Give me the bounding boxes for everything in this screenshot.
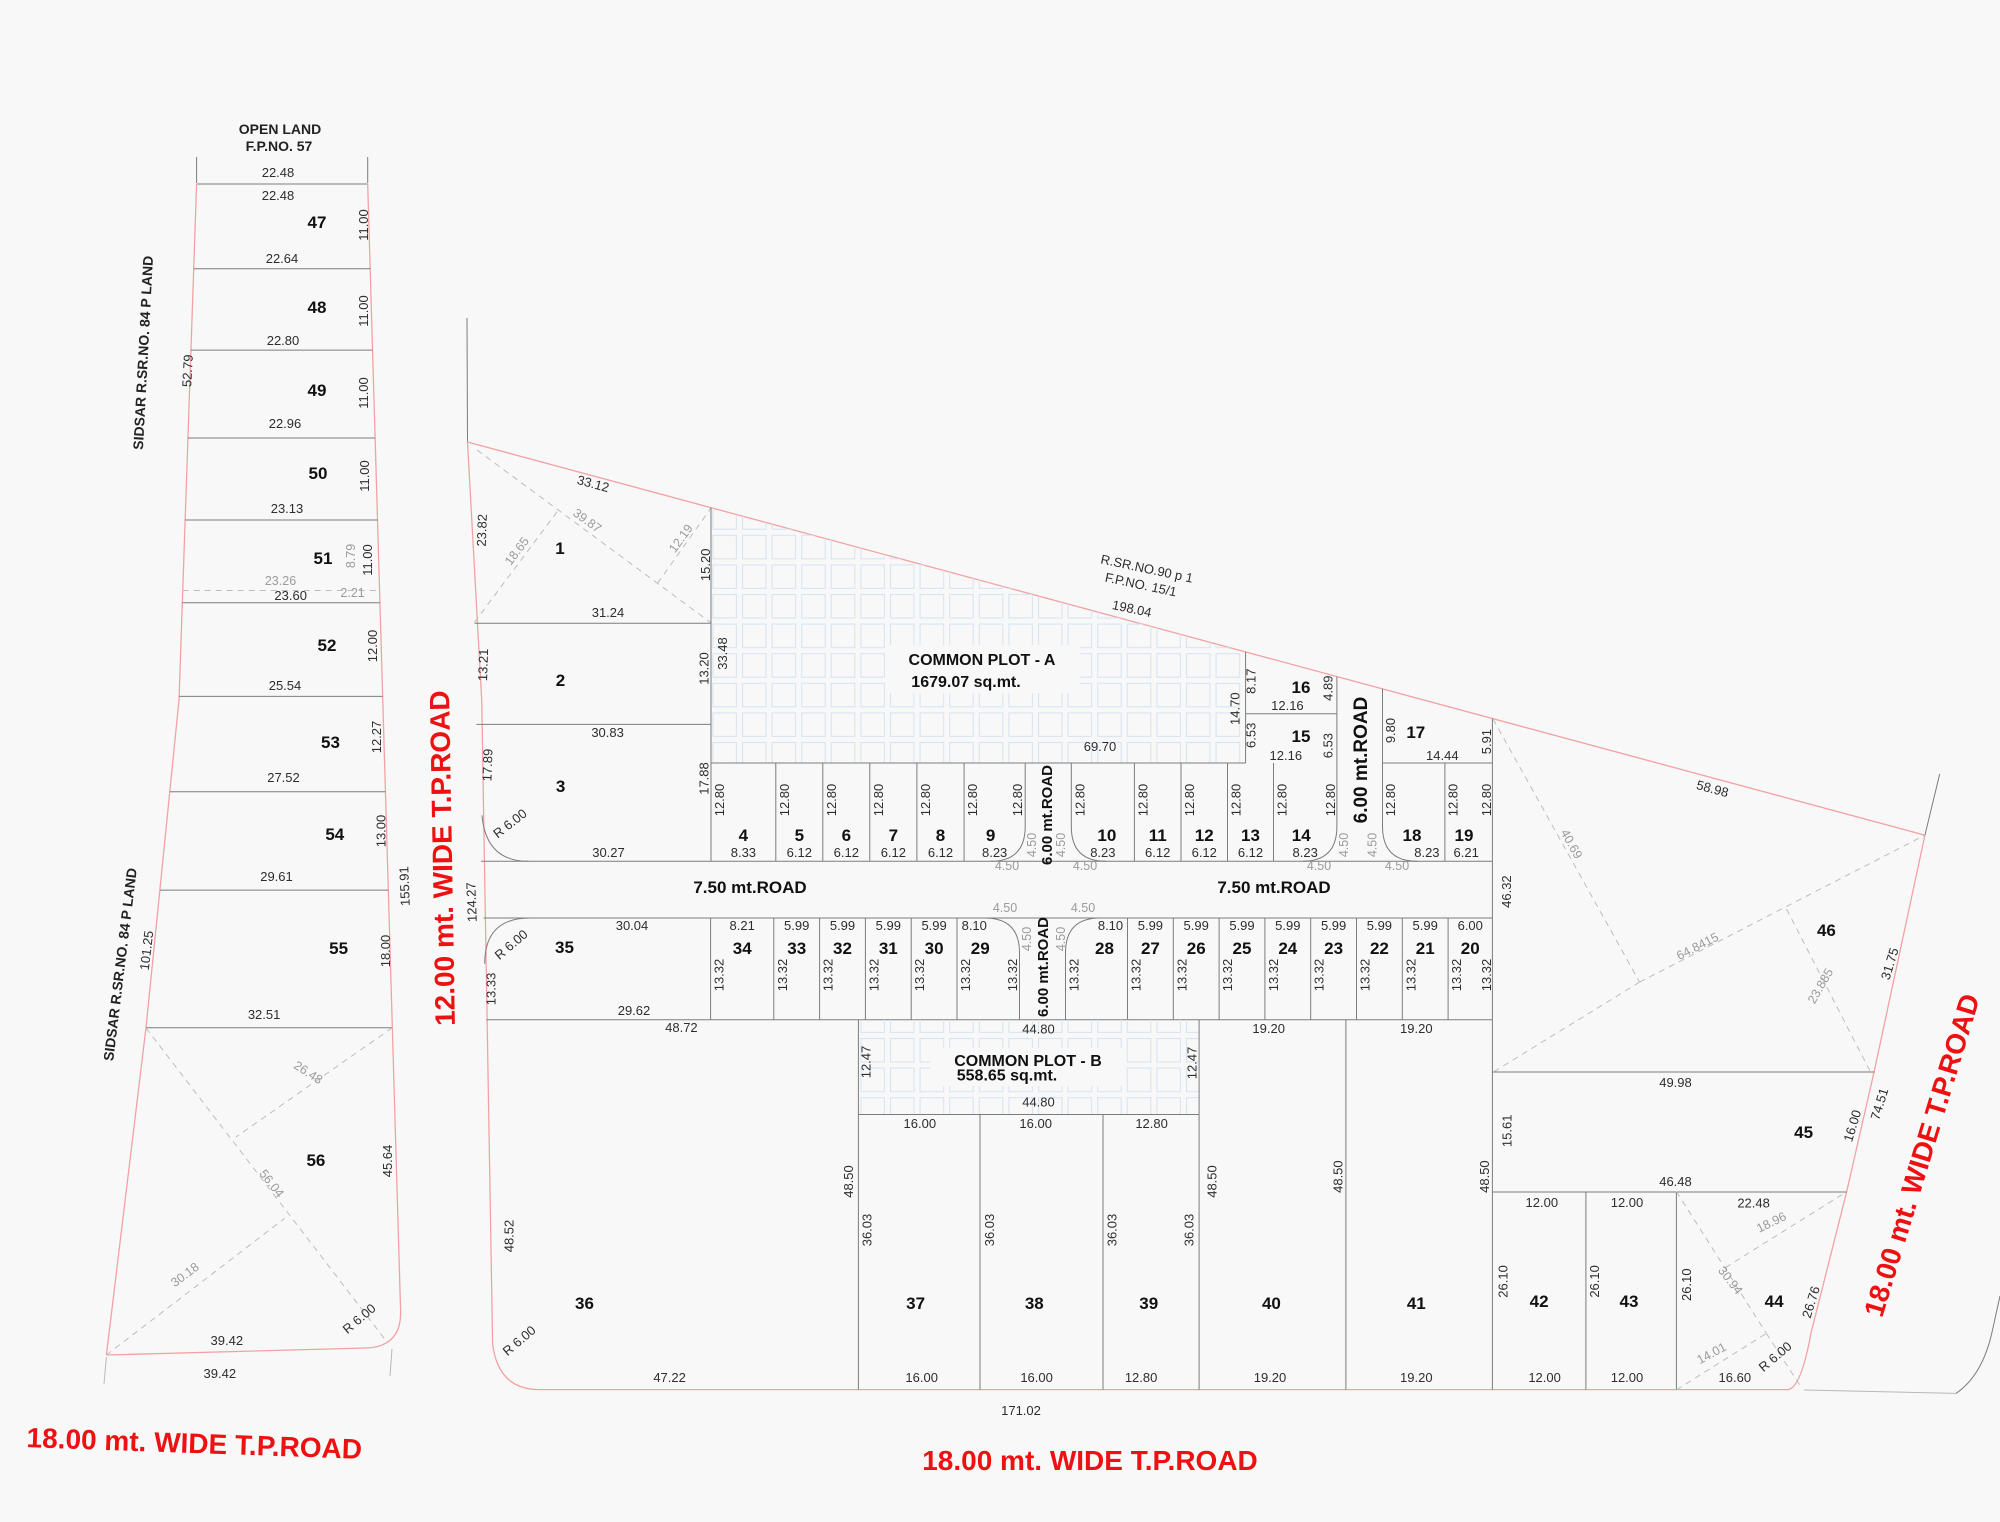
svg-text:4.50: 4.50	[1366, 833, 1380, 857]
svg-text:17.89: 17.89	[479, 749, 495, 782]
svg-text:5.99: 5.99	[1413, 918, 1438, 933]
svg-text:6.12: 6.12	[928, 845, 953, 860]
svg-text:39.42: 39.42	[204, 1366, 237, 1381]
svg-text:20: 20	[1461, 939, 1480, 958]
svg-text:3: 3	[556, 777, 565, 796]
svg-text:12.80: 12.80	[1135, 1116, 1168, 1131]
svg-text:31: 31	[879, 939, 898, 958]
svg-text:52: 52	[318, 636, 337, 655]
svg-text:4.50: 4.50	[1307, 859, 1331, 873]
svg-text:45.64: 45.64	[380, 1145, 395, 1178]
svg-text:36.03: 36.03	[982, 1214, 997, 1247]
svg-text:22.80: 22.80	[267, 333, 300, 348]
svg-text:6.12: 6.12	[1238, 845, 1263, 860]
svg-text:COMMON PLOT - A: COMMON PLOT - A	[909, 652, 1056, 669]
svg-text:5.99: 5.99	[1229, 918, 1254, 933]
svg-text:30.83: 30.83	[591, 725, 624, 740]
svg-text:22.48: 22.48	[1737, 1196, 1770, 1211]
svg-text:11.00: 11.00	[356, 295, 371, 327]
svg-text:15: 15	[1292, 727, 1311, 746]
svg-text:6.12: 6.12	[1192, 845, 1217, 860]
svg-text:39: 39	[1139, 1294, 1158, 1313]
svg-text:13.32: 13.32	[958, 959, 973, 992]
svg-text:8.23: 8.23	[982, 845, 1007, 860]
svg-text:22.48: 22.48	[262, 188, 295, 203]
svg-text:13.21: 13.21	[475, 648, 491, 681]
svg-text:5: 5	[795, 826, 804, 845]
svg-text:2: 2	[556, 671, 565, 690]
svg-text:22.64: 22.64	[266, 251, 299, 266]
svg-text:12.00: 12.00	[1528, 1370, 1561, 1385]
svg-text:48.50: 48.50	[841, 1165, 856, 1198]
svg-text:13.32: 13.32	[1358, 959, 1373, 992]
svg-text:12.00: 12.00	[1526, 1195, 1559, 1210]
svg-text:12.47: 12.47	[1185, 1047, 1200, 1080]
svg-text:12.80: 12.80	[1323, 784, 1338, 817]
svg-text:38: 38	[1025, 1294, 1044, 1313]
svg-text:16.00: 16.00	[1019, 1116, 1052, 1131]
svg-text:13.32: 13.32	[775, 959, 790, 992]
svg-text:OPEN LAND: OPEN LAND	[239, 121, 321, 137]
svg-text:6.12: 6.12	[881, 845, 906, 860]
svg-text:12.80: 12.80	[1182, 784, 1197, 817]
svg-text:30.27: 30.27	[592, 845, 625, 860]
svg-text:12: 12	[1195, 826, 1214, 845]
svg-text:10: 10	[1097, 826, 1116, 845]
svg-text:40: 40	[1262, 1294, 1281, 1313]
svg-text:27.52: 27.52	[267, 770, 300, 785]
svg-text:25.54: 25.54	[269, 678, 302, 693]
svg-text:4.50: 4.50	[1054, 833, 1068, 857]
svg-text:30: 30	[925, 939, 944, 958]
svg-text:56: 56	[306, 1151, 325, 1170]
svg-text:16.00: 16.00	[904, 1116, 937, 1131]
svg-text:6.12: 6.12	[1145, 845, 1170, 860]
svg-text:6.53: 6.53	[1321, 733, 1336, 758]
svg-text:7.50 mt.ROAD: 7.50 mt.ROAD	[1217, 878, 1330, 897]
svg-text:50: 50	[309, 464, 328, 483]
svg-text:12.80: 12.80	[871, 784, 886, 817]
svg-text:19.20: 19.20	[1254, 1370, 1287, 1385]
svg-text:6.00 mt.ROAD: 6.00 mt.ROAD	[1035, 917, 1052, 1017]
svg-text:13.32: 13.32	[1449, 959, 1464, 992]
svg-text:29.61: 29.61	[260, 869, 293, 884]
svg-text:12.00: 12.00	[365, 630, 380, 663]
svg-text:22: 22	[1370, 939, 1389, 958]
svg-text:6.00 mt.ROAD: 6.00 mt.ROAD	[1351, 697, 1372, 824]
svg-text:26.10: 26.10	[1679, 1268, 1694, 1301]
svg-text:12.80: 12.80	[777, 784, 792, 817]
svg-text:18.00: 18.00	[378, 935, 393, 968]
svg-text:5.99: 5.99	[1184, 918, 1209, 933]
svg-text:19: 19	[1455, 826, 1474, 845]
svg-text:6: 6	[842, 826, 851, 845]
svg-text:32.51: 32.51	[248, 1007, 281, 1022]
svg-text:45: 45	[1794, 1123, 1813, 1142]
svg-text:12.80: 12.80	[1072, 784, 1087, 817]
svg-text:558.65 sq.mt.: 558.65 sq.mt.	[957, 1068, 1058, 1085]
svg-text:48.50: 48.50	[1331, 1160, 1346, 1193]
svg-text:15.61: 15.61	[1499, 1115, 1514, 1148]
svg-text:13.33: 13.33	[484, 973, 499, 1006]
svg-text:17: 17	[1406, 723, 1425, 742]
svg-text:4.50: 4.50	[1071, 901, 1095, 915]
svg-text:5.99: 5.99	[830, 918, 855, 933]
svg-text:48.52: 48.52	[501, 1220, 516, 1253]
svg-text:16: 16	[1292, 678, 1311, 697]
svg-text:36.03: 36.03	[1182, 1214, 1197, 1247]
svg-text:19.20: 19.20	[1252, 1021, 1285, 1036]
svg-text:4.50: 4.50	[1025, 833, 1039, 857]
svg-text:16.00: 16.00	[1020, 1370, 1053, 1385]
svg-text:13.32: 13.32	[1067, 959, 1082, 992]
svg-text:44.80: 44.80	[1022, 1095, 1055, 1110]
svg-text:8.21: 8.21	[730, 918, 755, 933]
svg-text:12.00 mt. WIDE T.P.ROAD: 12.00 mt. WIDE T.P.ROAD	[424, 690, 461, 1026]
svg-text:25: 25	[1233, 939, 1252, 958]
svg-text:14.44: 14.44	[1426, 748, 1459, 763]
svg-text:46.48: 46.48	[1659, 1174, 1692, 1189]
svg-text:2.21: 2.21	[340, 586, 364, 600]
svg-text:4.50: 4.50	[1385, 859, 1409, 873]
svg-text:23.13: 23.13	[271, 501, 304, 516]
svg-text:13.32: 13.32	[1403, 959, 1418, 992]
svg-text:13.32: 13.32	[1129, 959, 1144, 992]
svg-text:49.98: 49.98	[1659, 1075, 1692, 1090]
svg-text:23.82: 23.82	[474, 514, 490, 547]
svg-text:52.79: 52.79	[179, 354, 196, 387]
svg-text:5.99: 5.99	[784, 918, 809, 933]
svg-text:8.23: 8.23	[1090, 845, 1115, 860]
svg-text:124.27: 124.27	[463, 882, 479, 922]
svg-text:5.99: 5.99	[876, 918, 901, 933]
svg-text:4.50: 4.50	[1054, 927, 1068, 951]
svg-text:37: 37	[906, 1294, 925, 1313]
svg-text:8.23: 8.23	[1414, 845, 1439, 860]
svg-text:48.50: 48.50	[1477, 1160, 1492, 1193]
svg-text:6.00: 6.00	[1458, 918, 1483, 933]
svg-text:27: 27	[1141, 939, 1160, 958]
svg-text:12.47: 12.47	[859, 1046, 874, 1079]
svg-text:48: 48	[308, 298, 327, 317]
svg-text:55: 55	[329, 939, 348, 958]
svg-text:7.50 mt.ROAD: 7.50 mt.ROAD	[693, 878, 806, 897]
svg-text:8.23: 8.23	[1293, 845, 1318, 860]
svg-text:13.32: 13.32	[821, 959, 836, 992]
svg-text:35: 35	[555, 938, 574, 957]
svg-text:13.32: 13.32	[712, 959, 727, 992]
svg-text:12.80: 12.80	[1479, 784, 1494, 817]
svg-text:33: 33	[787, 939, 806, 958]
svg-text:42: 42	[1530, 1292, 1549, 1311]
svg-text:12.80: 12.80	[965, 784, 980, 817]
svg-text:13.32: 13.32	[1174, 959, 1189, 992]
svg-text:23: 23	[1324, 939, 1343, 958]
svg-text:29: 29	[971, 939, 990, 958]
svg-text:9.80: 9.80	[1383, 718, 1398, 743]
svg-text:49: 49	[308, 381, 327, 400]
svg-text:26: 26	[1187, 939, 1206, 958]
svg-text:5.91: 5.91	[1479, 729, 1494, 754]
svg-text:12.27: 12.27	[369, 721, 384, 754]
svg-text:4.50: 4.50	[1337, 833, 1351, 857]
svg-text:F.P.NO. 57: F.P.NO. 57	[246, 138, 313, 154]
svg-text:48.72: 48.72	[665, 1020, 698, 1035]
svg-text:12.80: 12.80	[712, 784, 727, 817]
svg-text:23.26: 23.26	[265, 574, 296, 588]
svg-text:4.89: 4.89	[1321, 676, 1336, 701]
svg-text:13.32: 13.32	[1312, 959, 1327, 992]
svg-text:69.70: 69.70	[1084, 739, 1117, 754]
svg-text:36.03: 36.03	[859, 1214, 874, 1247]
svg-text:47: 47	[308, 213, 327, 232]
svg-text:12.16: 12.16	[1271, 698, 1304, 713]
svg-text:6.12: 6.12	[787, 845, 812, 860]
svg-text:12.80: 12.80	[918, 784, 933, 817]
svg-text:4.50: 4.50	[1073, 859, 1097, 873]
svg-text:54: 54	[325, 825, 344, 844]
svg-text:11: 11	[1149, 826, 1167, 845]
svg-text:24: 24	[1278, 939, 1297, 958]
svg-text:8.10: 8.10	[962, 918, 987, 933]
svg-text:26.10: 26.10	[1496, 1265, 1511, 1298]
svg-text:14.70: 14.70	[1228, 692, 1243, 725]
svg-text:31.24: 31.24	[592, 605, 625, 620]
svg-text:5.99: 5.99	[921, 918, 946, 933]
svg-text:23.60: 23.60	[274, 588, 307, 603]
svg-text:14: 14	[1292, 826, 1311, 845]
svg-text:1: 1	[555, 539, 564, 558]
svg-text:13.32: 13.32	[1005, 959, 1020, 992]
svg-text:5.99: 5.99	[1138, 918, 1163, 933]
svg-text:17.88: 17.88	[697, 762, 712, 795]
svg-text:12.80: 12.80	[1383, 784, 1398, 817]
svg-text:11.00: 11.00	[360, 544, 375, 576]
svg-text:8.79: 8.79	[344, 544, 358, 568]
svg-text:22.48: 22.48	[262, 165, 295, 180]
svg-text:46.32: 46.32	[1499, 875, 1514, 908]
svg-text:16.00: 16.00	[905, 1370, 938, 1385]
svg-text:43: 43	[1620, 1292, 1639, 1311]
svg-text:8.10: 8.10	[1098, 918, 1123, 933]
svg-text:46: 46	[1817, 921, 1836, 940]
svg-text:171.02: 171.02	[1001, 1403, 1041, 1418]
svg-text:41: 41	[1407, 1294, 1426, 1313]
svg-text:4.50: 4.50	[1020, 927, 1034, 951]
svg-text:12.80: 12.80	[1010, 784, 1025, 817]
svg-text:8: 8	[936, 826, 945, 845]
svg-text:12.80: 12.80	[824, 784, 839, 817]
svg-text:13.32: 13.32	[1220, 959, 1235, 992]
svg-text:48.50: 48.50	[1205, 1165, 1220, 1198]
svg-text:5.99: 5.99	[1275, 918, 1300, 933]
svg-text:12.80: 12.80	[1275, 784, 1290, 817]
svg-text:19.20: 19.20	[1400, 1370, 1433, 1385]
svg-text:13.32: 13.32	[912, 959, 927, 992]
svg-text:12.00: 12.00	[1611, 1195, 1644, 1210]
svg-text:6.12: 6.12	[834, 845, 859, 860]
svg-text:51: 51	[314, 549, 333, 568]
svg-text:21: 21	[1416, 939, 1435, 958]
svg-text:1679.07 sq.mt.: 1679.07 sq.mt.	[911, 674, 1020, 691]
svg-text:6.53: 6.53	[1244, 723, 1259, 748]
svg-text:4.50: 4.50	[993, 901, 1017, 915]
svg-text:4: 4	[739, 826, 749, 845]
svg-text:4.50: 4.50	[995, 859, 1019, 873]
svg-text:13.00: 13.00	[374, 815, 389, 848]
svg-text:12.16: 12.16	[1270, 748, 1303, 763]
svg-text:12.80: 12.80	[1125, 1370, 1158, 1385]
svg-text:12.80: 12.80	[1229, 784, 1244, 817]
svg-text:44: 44	[1765, 1292, 1784, 1311]
svg-text:12.00: 12.00	[1611, 1370, 1644, 1385]
svg-text:8.17: 8.17	[1244, 669, 1259, 694]
svg-text:13.32: 13.32	[1479, 959, 1494, 992]
svg-text:34: 34	[733, 939, 752, 958]
svg-text:13: 13	[1241, 826, 1260, 845]
svg-text:26.10: 26.10	[1587, 1265, 1602, 1298]
svg-text:18: 18	[1403, 826, 1422, 845]
svg-text:6.21: 6.21	[1454, 845, 1479, 860]
svg-text:32: 32	[833, 939, 852, 958]
svg-text:13.32: 13.32	[1266, 959, 1281, 992]
svg-text:30.04: 30.04	[616, 918, 649, 933]
svg-text:44.80: 44.80	[1022, 1022, 1055, 1037]
svg-text:36: 36	[575, 1294, 594, 1313]
svg-text:11.00: 11.00	[356, 377, 371, 409]
svg-text:33.48: 33.48	[715, 637, 730, 670]
svg-text:28: 28	[1095, 939, 1114, 958]
svg-text:5.99: 5.99	[1367, 918, 1392, 933]
svg-text:22.96: 22.96	[269, 416, 302, 431]
svg-text:18.00 mt. WIDE T.P.ROAD: 18.00 mt. WIDE T.P.ROAD	[922, 1445, 1258, 1476]
svg-text:9: 9	[986, 826, 995, 845]
svg-text:29.62: 29.62	[618, 1003, 651, 1018]
svg-text:19.20: 19.20	[1400, 1021, 1433, 1036]
svg-text:11.00: 11.00	[357, 460, 372, 492]
svg-text:12.80: 12.80	[1135, 784, 1150, 817]
svg-text:7: 7	[889, 826, 898, 845]
svg-text:8.33: 8.33	[731, 845, 756, 860]
svg-text:11.00: 11.00	[356, 209, 371, 241]
svg-text:155.91: 155.91	[396, 866, 412, 906]
svg-text:53: 53	[321, 733, 340, 752]
svg-text:36.03: 36.03	[1104, 1214, 1119, 1247]
svg-text:39.42: 39.42	[211, 1333, 244, 1348]
svg-text:5.99: 5.99	[1321, 918, 1346, 933]
svg-text:16.60: 16.60	[1719, 1370, 1752, 1385]
svg-text:13.20: 13.20	[697, 652, 712, 685]
svg-text:12.80: 12.80	[1446, 784, 1461, 817]
svg-text:13.32: 13.32	[866, 959, 881, 992]
svg-text:47.22: 47.22	[653, 1370, 686, 1385]
